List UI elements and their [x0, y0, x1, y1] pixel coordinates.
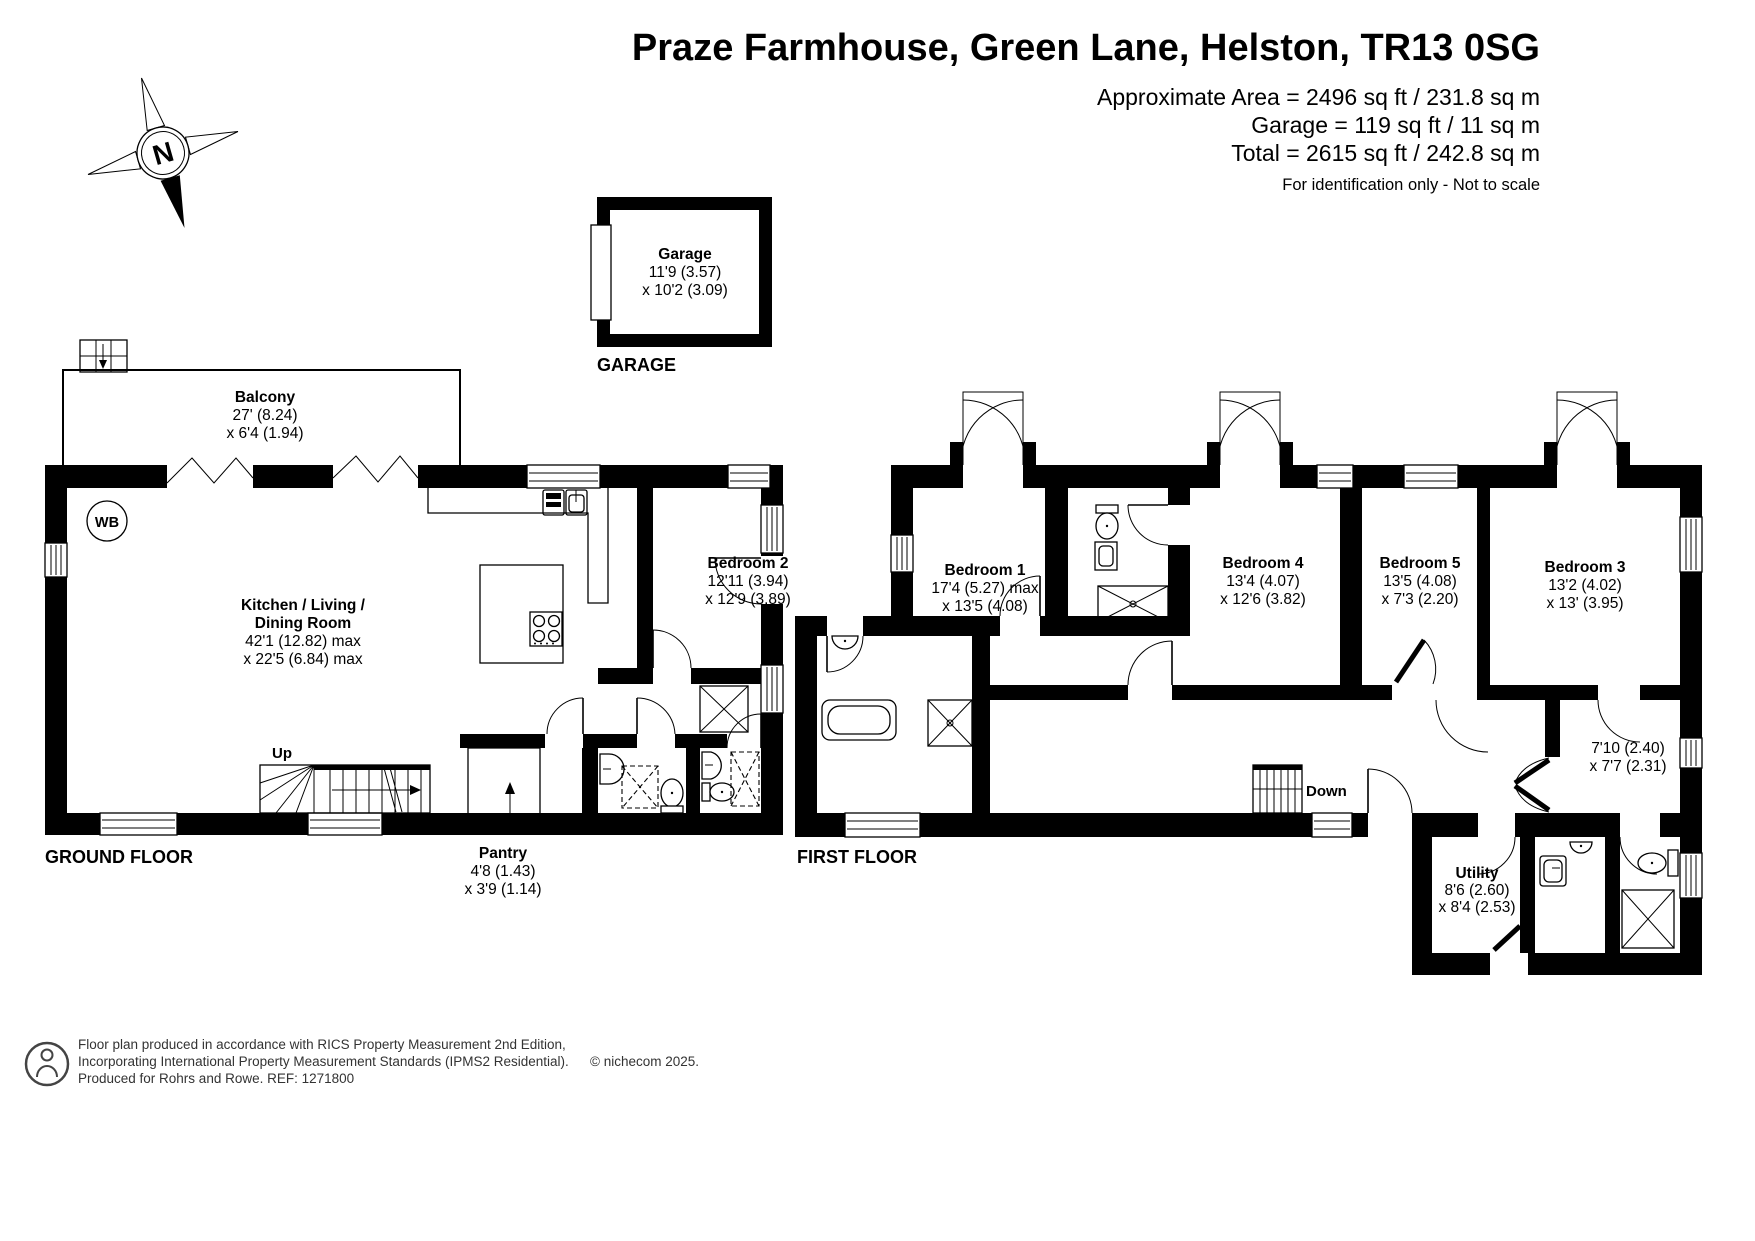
door — [1128, 641, 1172, 685]
bedroom5-dim1: 13'5 (4.08) — [1383, 573, 1457, 590]
page-title: Praze Farmhouse, Green Lane, Helston, TR… — [632, 27, 1540, 69]
window — [1404, 465, 1458, 488]
window — [527, 465, 600, 488]
kitchen-dim1: 42'1 (12.82) max — [245, 633, 361, 650]
stairs-down-label: Down — [1306, 783, 1347, 800]
total-area-text: Total = 2615 sq ft / 242.8 sq m — [1231, 140, 1540, 166]
header: Praze Farmhouse, Green Lane, Helston, TR… — [632, 27, 1540, 194]
sink-icon — [1540, 856, 1566, 886]
bedroom2-dim1: 12'11 (3.94) — [707, 573, 788, 590]
pantry-name: Pantry — [479, 845, 528, 862]
shower-icon — [700, 686, 748, 732]
sink-icon — [1095, 542, 1117, 570]
ground-floor-label: GROUND FLOOR — [45, 847, 193, 867]
bedroom1-dim1: 17'4 (5.27) max — [931, 580, 1038, 597]
door — [653, 630, 691, 668]
door — [547, 698, 583, 734]
sink-unit-icon — [543, 490, 587, 515]
store-dim2: x 7'7 (2.31) — [1589, 758, 1666, 775]
wb-label: WB — [95, 515, 119, 531]
stairs-up: Up — [260, 745, 430, 813]
window — [1680, 738, 1702, 768]
window — [1680, 517, 1702, 572]
bedroom3-name: Bedroom 3 — [1545, 559, 1626, 576]
ground-floor-doors — [547, 630, 761, 748]
sink-icon — [832, 636, 858, 649]
window — [1312, 813, 1352, 837]
door — [1128, 505, 1168, 545]
bedroom5-dim2: x 7'3 (2.20) — [1381, 591, 1458, 608]
double-door-icon — [1515, 758, 1549, 812]
garage-room-dim2: x 10'2 (3.09) — [642, 282, 728, 299]
ground-floor-plan: Balcony 27' (8.24) x 6'4 (1.94) — [45, 340, 791, 898]
sink-icon — [600, 754, 624, 784]
sink-icon — [1570, 842, 1592, 853]
garage-room-name: Garage — [658, 246, 712, 263]
balcony: Balcony 27' (8.24) x 6'4 (1.94) — [63, 340, 460, 465]
bathtub-icon — [822, 700, 896, 740]
door — [1396, 640, 1436, 684]
french-doors-icon — [1218, 392, 1282, 465]
bedroom2-name: Bedroom 2 — [708, 555, 789, 572]
shower-icon — [731, 752, 759, 806]
bedroom4-dim1: 13'4 (4.07) — [1226, 573, 1300, 590]
door — [1598, 700, 1640, 742]
hob-icon — [530, 612, 562, 646]
first-floor-plan: Down Bedroom 1 17'4 (5.27) max x — [795, 392, 1702, 975]
pantry-dim2: x 3'9 (1.14) — [464, 881, 541, 898]
toilet-icon — [1096, 505, 1118, 539]
french-doors-icon — [1555, 392, 1619, 465]
window — [308, 813, 382, 835]
compass-icon: N — [67, 57, 260, 250]
balcony-name: Balcony — [235, 389, 296, 406]
window — [1317, 465, 1353, 488]
door — [637, 698, 675, 734]
bifold-door-icon — [333, 456, 418, 482]
first-floor-walls — [795, 442, 1702, 975]
first-floor-label: FIRST FLOOR — [797, 847, 917, 867]
footer: Floor plan produced in accordance with R… — [26, 1037, 699, 1086]
shower-icon — [928, 700, 972, 746]
kitchen-name1: Kitchen / Living / — [241, 597, 366, 614]
window — [45, 543, 67, 577]
garage-door — [591, 225, 611, 320]
stairs-down: Down — [1253, 765, 1347, 813]
kitchen-counter — [428, 488, 608, 603]
store-dim1: 7'10 (2.40) — [1591, 740, 1665, 757]
person-icon — [26, 1043, 68, 1085]
door — [1436, 700, 1488, 752]
window — [100, 813, 177, 835]
bedroom3-dim2: x 13' (3.95) — [1546, 595, 1623, 612]
garage-area-text: Garage = 119 sq ft / 11 sq m — [1251, 112, 1540, 138]
bedroom2-dim2: x 12'9 (3.89) — [705, 591, 791, 608]
window — [1680, 853, 1702, 898]
stairs-up-label: Up — [272, 745, 292, 762]
utility-dim1: 8'6 (2.60) — [1445, 882, 1510, 899]
door — [1494, 926, 1520, 950]
footer-line1: Floor plan produced in accordance with R… — [78, 1037, 566, 1052]
bedroom4-dim2: x 12'6 (3.82) — [1220, 591, 1306, 608]
utility-dim2: x 8'4 (2.53) — [1438, 899, 1515, 916]
french-doors-icon — [961, 392, 1025, 465]
kitchen-island — [480, 565, 563, 663]
window — [891, 535, 913, 572]
door — [727, 714, 761, 748]
bifold-door-icon — [167, 458, 253, 483]
pantry-dim1: 4'8 (1.43) — [471, 863, 536, 880]
balcony-dim1: 27' (8.24) — [233, 407, 298, 424]
footer-line3: Produced for Rohrs and Rowe. REF: 127180… — [78, 1071, 354, 1086]
toilet-icon — [702, 783, 734, 801]
bedroom3-dim1: 13'2 (4.02) — [1548, 577, 1622, 594]
utility-name: Utility — [1455, 865, 1498, 882]
balcony-steps — [80, 340, 127, 372]
kitchen-dim2: x 22'5 (6.84) max — [243, 651, 363, 668]
floorplan-page: Praze Farmhouse, Green Lane, Helston, TR… — [0, 0, 1755, 1241]
garage-plan: Garage 11'9 (3.57) x 10'2 (3.09) GARAGE — [591, 197, 772, 375]
garage-room-dim1: 11'9 (3.57) — [649, 264, 721, 281]
door — [1368, 769, 1412, 813]
approx-area-text: Approximate Area = 2496 sq ft / 231.8 sq… — [1097, 84, 1540, 110]
window — [845, 813, 920, 837]
wb-circle: WB — [87, 501, 127, 541]
toilet-icon — [661, 779, 683, 813]
bedroom5-name: Bedroom 5 — [1380, 555, 1461, 572]
bedroom4-name: Bedroom 4 — [1223, 555, 1304, 572]
bedroom1-name: Bedroom 1 — [945, 562, 1026, 579]
bedroom1-dim2: x 13'5 (4.08) — [942, 598, 1028, 615]
shower-icon — [622, 766, 658, 808]
copyright-text: © nichecom 2025. — [590, 1054, 699, 1069]
sink-icon — [702, 752, 721, 779]
window — [761, 665, 783, 713]
window — [728, 465, 770, 488]
shower-icon — [1622, 890, 1674, 948]
scale-note: For identification only - Not to scale — [1282, 176, 1540, 194]
footer-line2: Incorporating International Property Mea… — [78, 1054, 569, 1069]
balcony-dim2: x 6'4 (1.94) — [226, 425, 303, 442]
window — [761, 505, 783, 553]
garage-label: GARAGE — [597, 355, 676, 375]
kitchen-name2: Dining Room — [255, 615, 351, 632]
